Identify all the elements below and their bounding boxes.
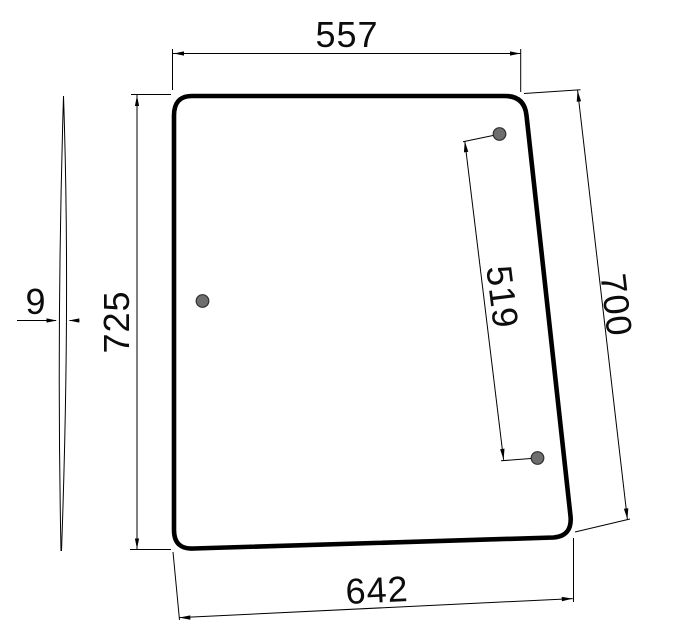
profile-edge-left xyxy=(59,96,63,551)
arrowhead xyxy=(135,539,139,550)
dimension-label-hole-spacing: 519 xyxy=(478,263,526,331)
arrowhead xyxy=(135,96,139,107)
dimension-label-top-width: 557 xyxy=(315,14,378,55)
mounting-hole-left xyxy=(196,295,209,308)
dimension-top-width: 557 xyxy=(173,14,522,92)
extension-line xyxy=(173,552,180,620)
dimension-label-profile-thickness: 9 xyxy=(25,281,46,322)
mounting-hole-bottom-right xyxy=(531,452,544,465)
arrowhead xyxy=(69,318,80,322)
arrowhead xyxy=(47,318,58,322)
profile-edge-right xyxy=(62,96,67,551)
technical-drawing: 557 725 700 519 9 xyxy=(0,0,677,644)
arrowhead xyxy=(179,615,190,619)
dimension-label-bottom-width: 642 xyxy=(345,568,410,612)
drawing-canvas: 557 725 700 519 9 xyxy=(0,0,677,644)
extension-line xyxy=(524,90,581,94)
dimension-left-height: 725 xyxy=(96,95,171,550)
arrowhead xyxy=(174,51,185,55)
arrowhead xyxy=(510,51,521,55)
dimension-label-left-height: 725 xyxy=(96,290,137,353)
dimension-label-right-height: 700 xyxy=(593,271,641,338)
dimension-profile-thickness: 9 xyxy=(17,281,80,323)
side-profile-view xyxy=(59,96,66,551)
mounting-hole-top-right xyxy=(493,128,506,141)
extension-line xyxy=(575,519,630,532)
dimension-bottom-width: 642 xyxy=(173,538,574,620)
